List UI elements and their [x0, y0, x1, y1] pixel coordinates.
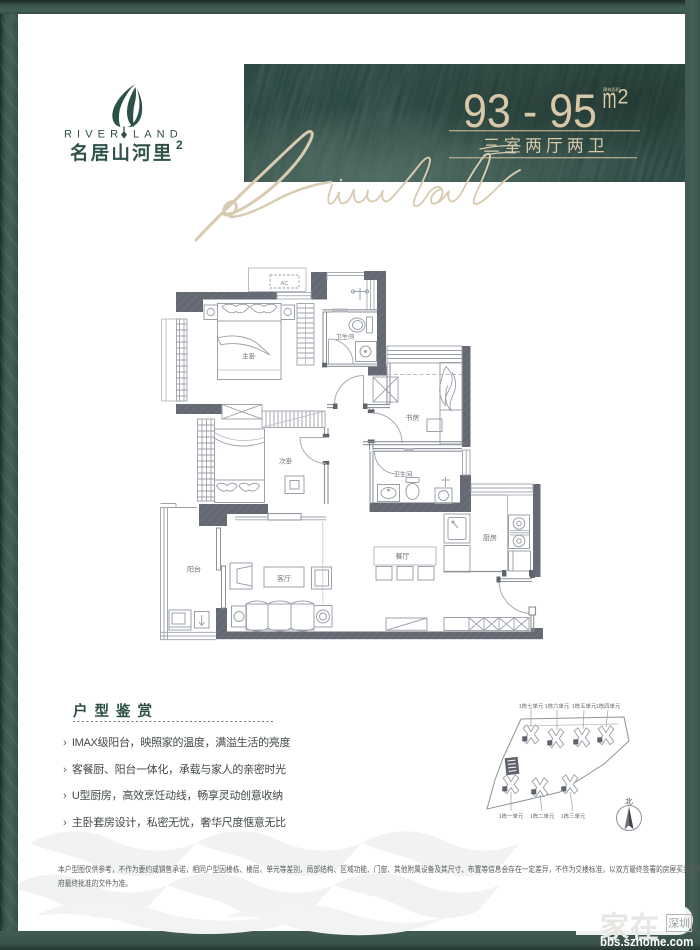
svg-text:客厅: 客厅 [277, 574, 291, 583]
svg-text:阳台: 阳台 [187, 565, 201, 574]
svg-text:1栋四单元: 1栋四单元 [596, 702, 621, 710]
svg-text:1栋七单元: 1栋七单元 [519, 702, 544, 710]
svg-text:AC: AC [281, 281, 289, 287]
svg-text:1栋五单元: 1栋五单元 [572, 702, 597, 710]
svg-text:1栋二单元: 1栋二单元 [530, 812, 555, 820]
svg-text:1栋三单元: 1栋三单元 [561, 812, 586, 820]
svg-text:次卧: 次卧 [279, 457, 293, 466]
svg-text:厨房: 厨房 [483, 533, 497, 542]
svg-text:1栋六单元: 1栋六单元 [545, 702, 570, 710]
svg-text:主卧: 主卧 [242, 352, 256, 361]
svg-text:餐厅: 餐厅 [396, 552, 410, 561]
svg-text:卫生间: 卫生间 [394, 471, 413, 479]
svg-text:书房: 书房 [406, 413, 420, 422]
svg-text:北: 北 [625, 797, 633, 806]
svg-text:1栋一单元: 1栋一单元 [499, 812, 524, 820]
svg-text:卫生间: 卫生间 [336, 333, 355, 341]
